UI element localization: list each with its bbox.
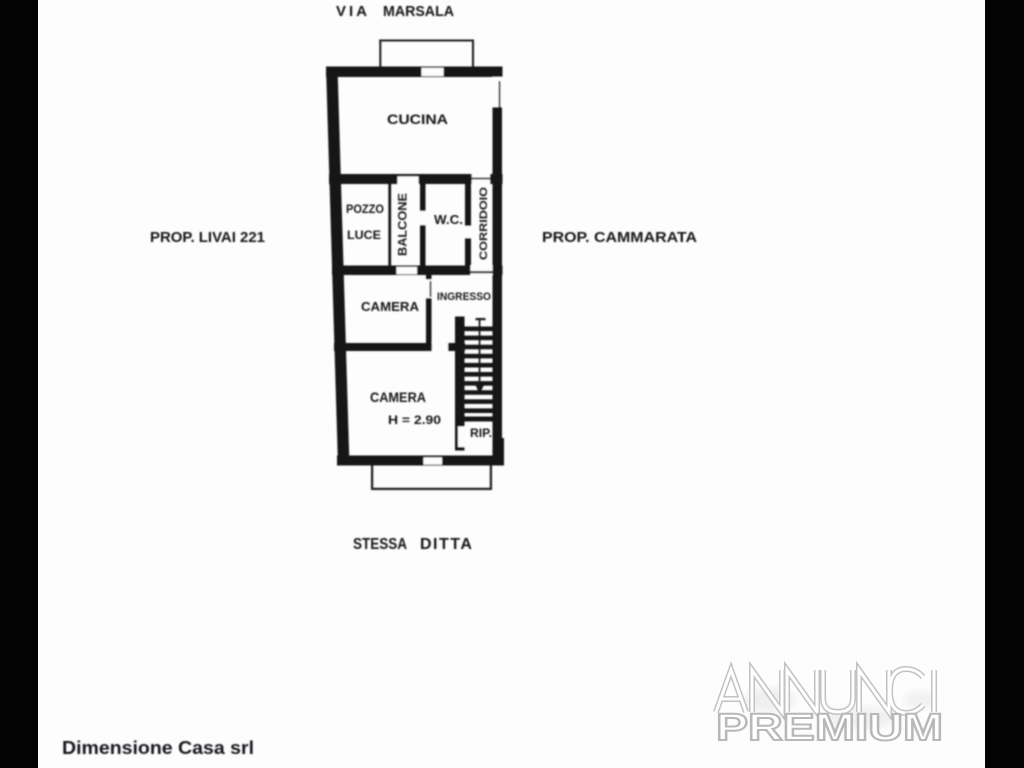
svg-text:CORRIDOIO: CORRIDOIO: [478, 186, 490, 260]
svg-text:MARSALA: MARSALA: [383, 3, 454, 20]
svg-text:RIP.: RIP.: [470, 428, 492, 440]
svg-text:BALCONE: BALCONE: [396, 193, 410, 256]
svg-text:STESSA: STESSA: [353, 536, 407, 553]
svg-text:PROP. LIVAI 221: PROP. LIVAI 221: [150, 230, 265, 246]
svg-text:PROP. CAMMARATA: PROP. CAMMARATA: [542, 230, 698, 246]
svg-text:INGRESSO: INGRESSO: [437, 291, 491, 303]
svg-text:Dimensione Casa srl: Dimensione Casa srl: [62, 738, 254, 758]
svg-text:POZZO: POZZO: [346, 202, 384, 216]
svg-text:CUCINA: CUCINA: [387, 112, 448, 127]
svg-text:CAMERA: CAMERA: [370, 390, 426, 405]
svg-text:H = 2.90: H = 2.90: [388, 413, 441, 427]
svg-text:CAMERA: CAMERA: [361, 300, 419, 314]
svg-text:VIA: VIA: [336, 3, 370, 20]
svg-text:DITTA: DITTA: [420, 536, 473, 553]
svg-text:W.C.: W.C.: [434, 213, 463, 227]
svg-text:PREMIUM: PREMIUM: [716, 707, 943, 749]
svg-text:LUCE: LUCE: [347, 228, 381, 242]
